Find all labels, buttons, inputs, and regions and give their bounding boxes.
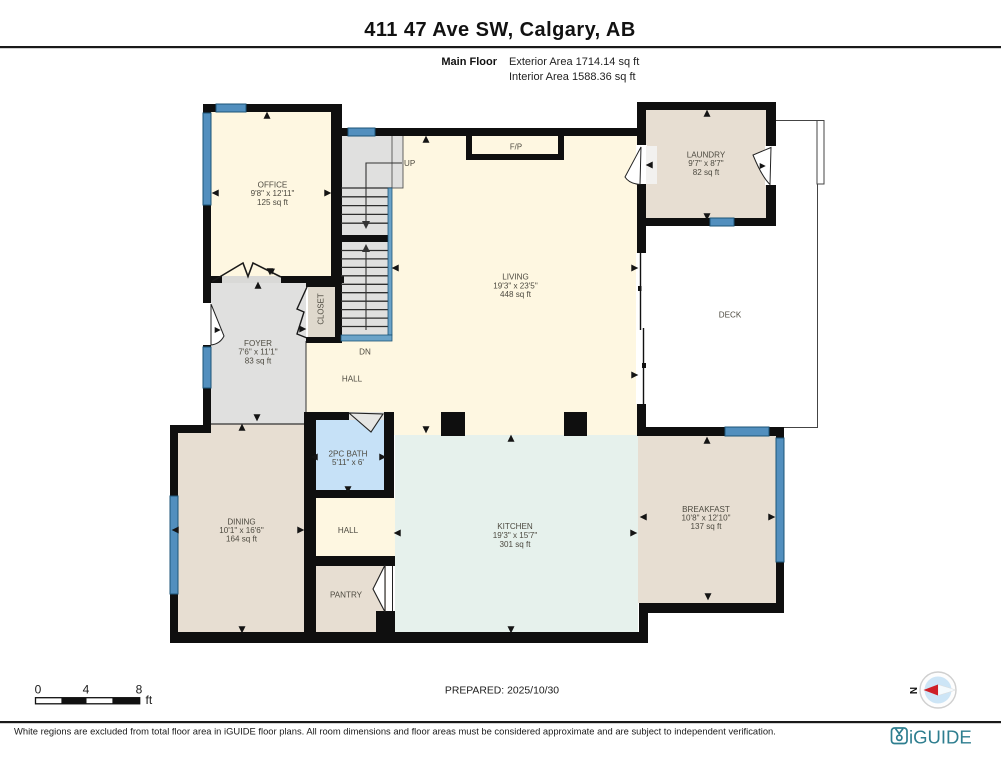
svg-text:19'3" x 15'7": 19'3" x 15'7" [493, 531, 538, 540]
svg-text:ft: ft [146, 693, 153, 707]
svg-text:7'6" x 11'1": 7'6" x 11'1" [238, 348, 277, 357]
svg-text:UP: UP [404, 159, 415, 168]
svg-text:PREPARED: 2025/10/30: PREPARED: 2025/10/30 [445, 686, 559, 697]
svg-text:DECK: DECK [719, 311, 742, 320]
svg-text:HALL: HALL [342, 375, 363, 384]
svg-text:HALL: HALL [338, 526, 359, 535]
svg-text:137 sq ft: 137 sq ft [690, 522, 722, 531]
svg-text:83 sq ft: 83 sq ft [245, 356, 272, 365]
svg-text:F/P: F/P [510, 143, 522, 152]
svg-text:N: N [909, 687, 920, 694]
svg-text:LAUNDRY: LAUNDRY [687, 151, 726, 160]
svg-text:BREAKFAST: BREAKFAST [682, 505, 730, 514]
svg-text:9'7" x 8'7": 9'7" x 8'7" [688, 159, 724, 168]
svg-text:4: 4 [83, 683, 90, 697]
svg-text:10'1" x 16'6": 10'1" x 16'6" [219, 526, 264, 535]
svg-text:125 sq ft: 125 sq ft [257, 198, 289, 207]
svg-text:10'8" x 12'10": 10'8" x 12'10" [682, 514, 731, 523]
svg-text:KITCHEN: KITCHEN [497, 522, 533, 531]
svg-text:Interior Area 1588.36 sq ft: Interior Area 1588.36 sq ft [509, 71, 636, 83]
svg-text:19'3" x 23'5": 19'3" x 23'5" [493, 281, 538, 290]
svg-text:Main Floor: Main Floor [441, 56, 497, 68]
svg-text:DINING: DINING [227, 517, 255, 526]
svg-text:Exterior Area 1714.14 sq ft: Exterior Area 1714.14 sq ft [509, 56, 639, 68]
svg-text:8: 8 [136, 683, 143, 697]
svg-text:OFFICE: OFFICE [258, 181, 288, 190]
svg-text:448 sq ft: 448 sq ft [500, 290, 532, 299]
svg-text:164 sq ft: 164 sq ft [226, 535, 258, 544]
svg-text:CLOSET: CLOSET [317, 293, 326, 324]
svg-text:DN: DN [359, 348, 371, 357]
svg-text:82 sq ft: 82 sq ft [693, 168, 720, 177]
svg-text:301 sq ft: 301 sq ft [499, 540, 531, 549]
svg-text:9'8" x 12'11": 9'8" x 12'11" [251, 189, 295, 198]
svg-text:iGUIDE: iGUIDE [909, 727, 972, 748]
svg-text:2PC BATH: 2PC BATH [329, 449, 368, 458]
svg-text:0: 0 [35, 683, 42, 697]
svg-text:LIVING: LIVING [502, 273, 529, 282]
svg-text:411 47 Ave SW, Calgary, AB: 411 47 Ave SW, Calgary, AB [364, 19, 635, 41]
svg-text:PANTRY: PANTRY [330, 591, 363, 600]
svg-text:White regions are excluded fro: White regions are excluded from total fl… [14, 726, 776, 737]
svg-text:FOYER: FOYER [244, 339, 272, 348]
svg-text:5'11" x 6': 5'11" x 6' [332, 458, 364, 467]
